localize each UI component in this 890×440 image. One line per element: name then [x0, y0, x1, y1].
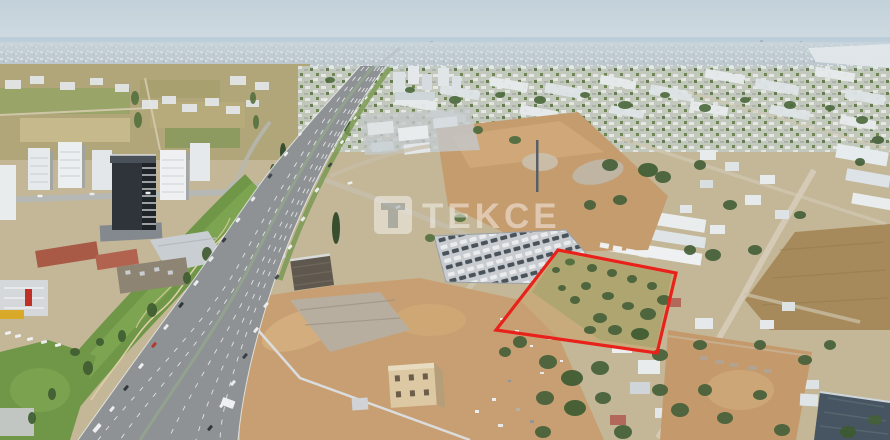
watermark-logo [374, 196, 412, 234]
watermark: TEKCE [374, 196, 561, 236]
fields-left [0, 64, 310, 160]
aerial-photo-canvas: TEKCE [0, 0, 890, 440]
house-under-construction [388, 362, 445, 412]
dark-roof-building [290, 253, 334, 290]
yellow-sign [0, 310, 24, 319]
red-sign [25, 289, 32, 306]
utility-pole [536, 140, 539, 192]
watermark-text: TEKCE [422, 197, 561, 236]
aerial-photo: TEKCE [0, 0, 890, 440]
